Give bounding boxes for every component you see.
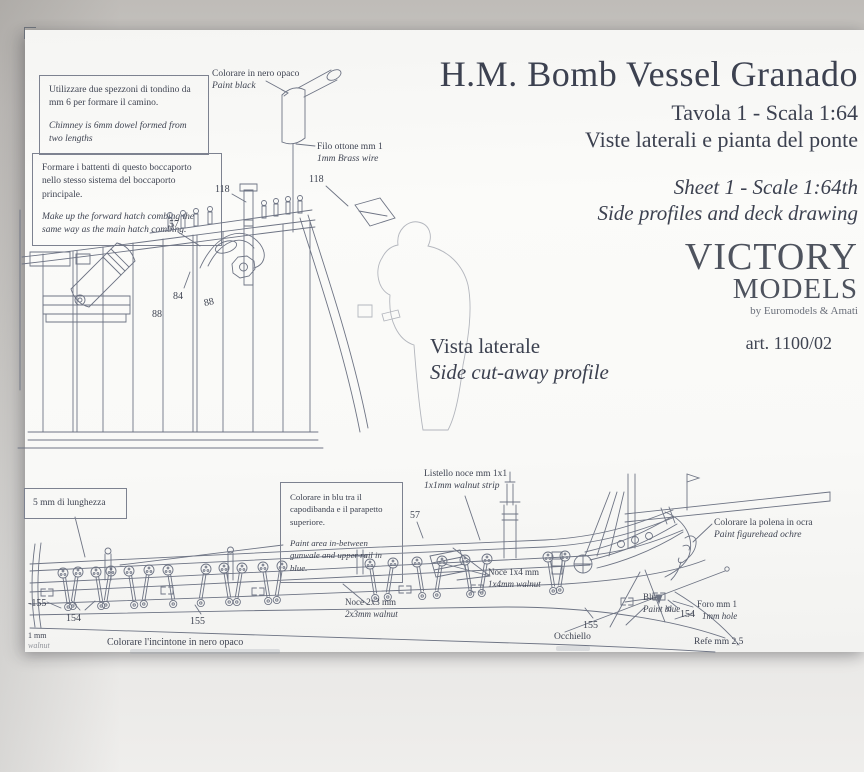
note-box-paint-blue: Colorare in blu tra il capodibanda e il …	[281, 483, 402, 582]
callout-wale-black: Colorare l'incintone in nero opaco	[107, 636, 243, 649]
part-number-154: 154	[680, 609, 695, 620]
part-number-84: 84	[173, 291, 183, 302]
callout-blue: Blu Paint blue	[643, 592, 680, 615]
leader-brass-wire	[296, 144, 315, 146]
callout-figurehead-en: Paint figurehead ochre	[714, 529, 813, 541]
callout-eyelet: Occhiello	[554, 631, 591, 643]
callout-walnut-1x4: Noce 1x4 mm 1x4mm walnut	[488, 567, 541, 590]
cathead-drawing	[355, 198, 395, 226]
part-number-57: 57	[169, 219, 179, 230]
article-number: art. 1100/02	[655, 333, 858, 354]
callout-paint-black-it: Colorare in nero opaco	[212, 68, 299, 80]
callout-walnut-2x3-it: Noce 2x3 mm	[345, 597, 398, 609]
callout-figurehead: Colorare la polena in ocra Paint figureh…	[714, 517, 813, 542]
callout-hole: Foro mm 1 1mm hole	[697, 599, 737, 622]
note-blue-italian: Colorare in blu tra il capodibanda e il …	[290, 492, 383, 527]
callout-thread: Refe mm 2,5	[694, 636, 743, 648]
section-label-en: Side cut-away profile	[430, 360, 609, 385]
note-blue-english: Paint area in-between gunwale and upper …	[290, 537, 393, 574]
callout-brass-wire: Filo ottone mm 1 1mm Brass wire	[317, 141, 383, 166]
note-length-italian: 5 mm di lunghezza	[33, 498, 106, 508]
callout-walnut-strip: Listello noce mm 1x1 1x1mm walnut strip	[424, 468, 507, 493]
photo-of-plan-sheet: H.M. Bomb Vessel Granado Tavola 1 - Scal…	[0, 0, 864, 772]
callout-edge-mm: 1 mm	[28, 631, 50, 641]
cutaway-profile-drawing	[18, 60, 488, 458]
callout-wale-black-it: Colorare l'incintone in nero opaco	[107, 636, 243, 649]
part-number-57: 57	[410, 510, 420, 521]
callout-edge-fragment: 1 mm walnut	[28, 631, 50, 652]
figurehead-drawing	[671, 536, 696, 580]
part-number-155-neg: -155	[28, 598, 46, 609]
callout-paint-black: Colorare in nero opaco Paint black	[212, 68, 299, 93]
callout-hole-en: 1mm hole	[697, 611, 737, 623]
callout-brass-wire-en: 1mm Brass wire	[317, 153, 383, 165]
callout-blue-it: Blu	[643, 592, 680, 604]
hull-structure	[18, 210, 323, 448]
callout-walnut-2x3-en: 2x3mm walnut	[345, 609, 398, 621]
timberhead-row	[168, 196, 303, 231]
leader-lines-upper	[178, 186, 348, 288]
callout-paint-black-en: Paint black	[212, 80, 299, 92]
logo-graphic	[858, 236, 864, 348]
callout-blue-en: Paint blue	[643, 604, 680, 616]
part-number-118: 118	[215, 184, 230, 195]
callout-brass-wire-it: Filo ottone mm 1	[317, 141, 383, 153]
part-number-88: 88	[152, 309, 162, 320]
callout-hole-it: Foro mm 1	[697, 599, 737, 611]
cutoff-text-bar	[556, 646, 590, 651]
callout-walnut-strip-it: Listello noce mm 1x1	[424, 468, 507, 480]
logo-byline: by Euromodels & Amati	[655, 305, 858, 317]
callout-figurehead-it: Colorare la polena in ocra	[714, 517, 813, 529]
note-box-length: 5 mm di lunghezza	[25, 489, 126, 518]
logo-brand-victory: VICTORY	[655, 238, 858, 276]
callout-edge-walnut: walnut	[28, 641, 50, 651]
mortar-drawing	[43, 243, 135, 322]
logo-brand-models: MODELS	[655, 275, 858, 304]
crop-corner-mark	[24, 27, 36, 39]
callout-eyelet-it: Occhiello	[554, 631, 591, 643]
faint-figure-outline	[358, 222, 470, 430]
callout-walnut-strip-en: 1x1mm walnut strip	[424, 480, 507, 492]
victory-models-logo: VICTORY MODELS by Euromodels & Amati art…	[655, 236, 858, 354]
part-number-154: 154	[66, 613, 81, 624]
part-number-88: 88	[203, 296, 215, 309]
section-label-it: Vista laterale	[430, 334, 609, 359]
callout-walnut-1x4-en: 1x4mm walnut	[488, 579, 541, 591]
part-number-155: 155	[583, 620, 598, 631]
cutoff-text-bar	[130, 649, 280, 654]
callout-walnut-1x4-it: Noce 1x4 mm	[488, 567, 541, 579]
part-number-155: 155	[190, 616, 205, 627]
part-number-118: 118	[309, 174, 324, 185]
section-label-side-profile: Vista laterale Side cut-away profile	[430, 334, 609, 385]
callout-walnut-2x3: Noce 2x3 mm 2x3mm walnut	[345, 597, 398, 620]
callout-thread-it: Refe mm 2,5	[694, 636, 743, 648]
